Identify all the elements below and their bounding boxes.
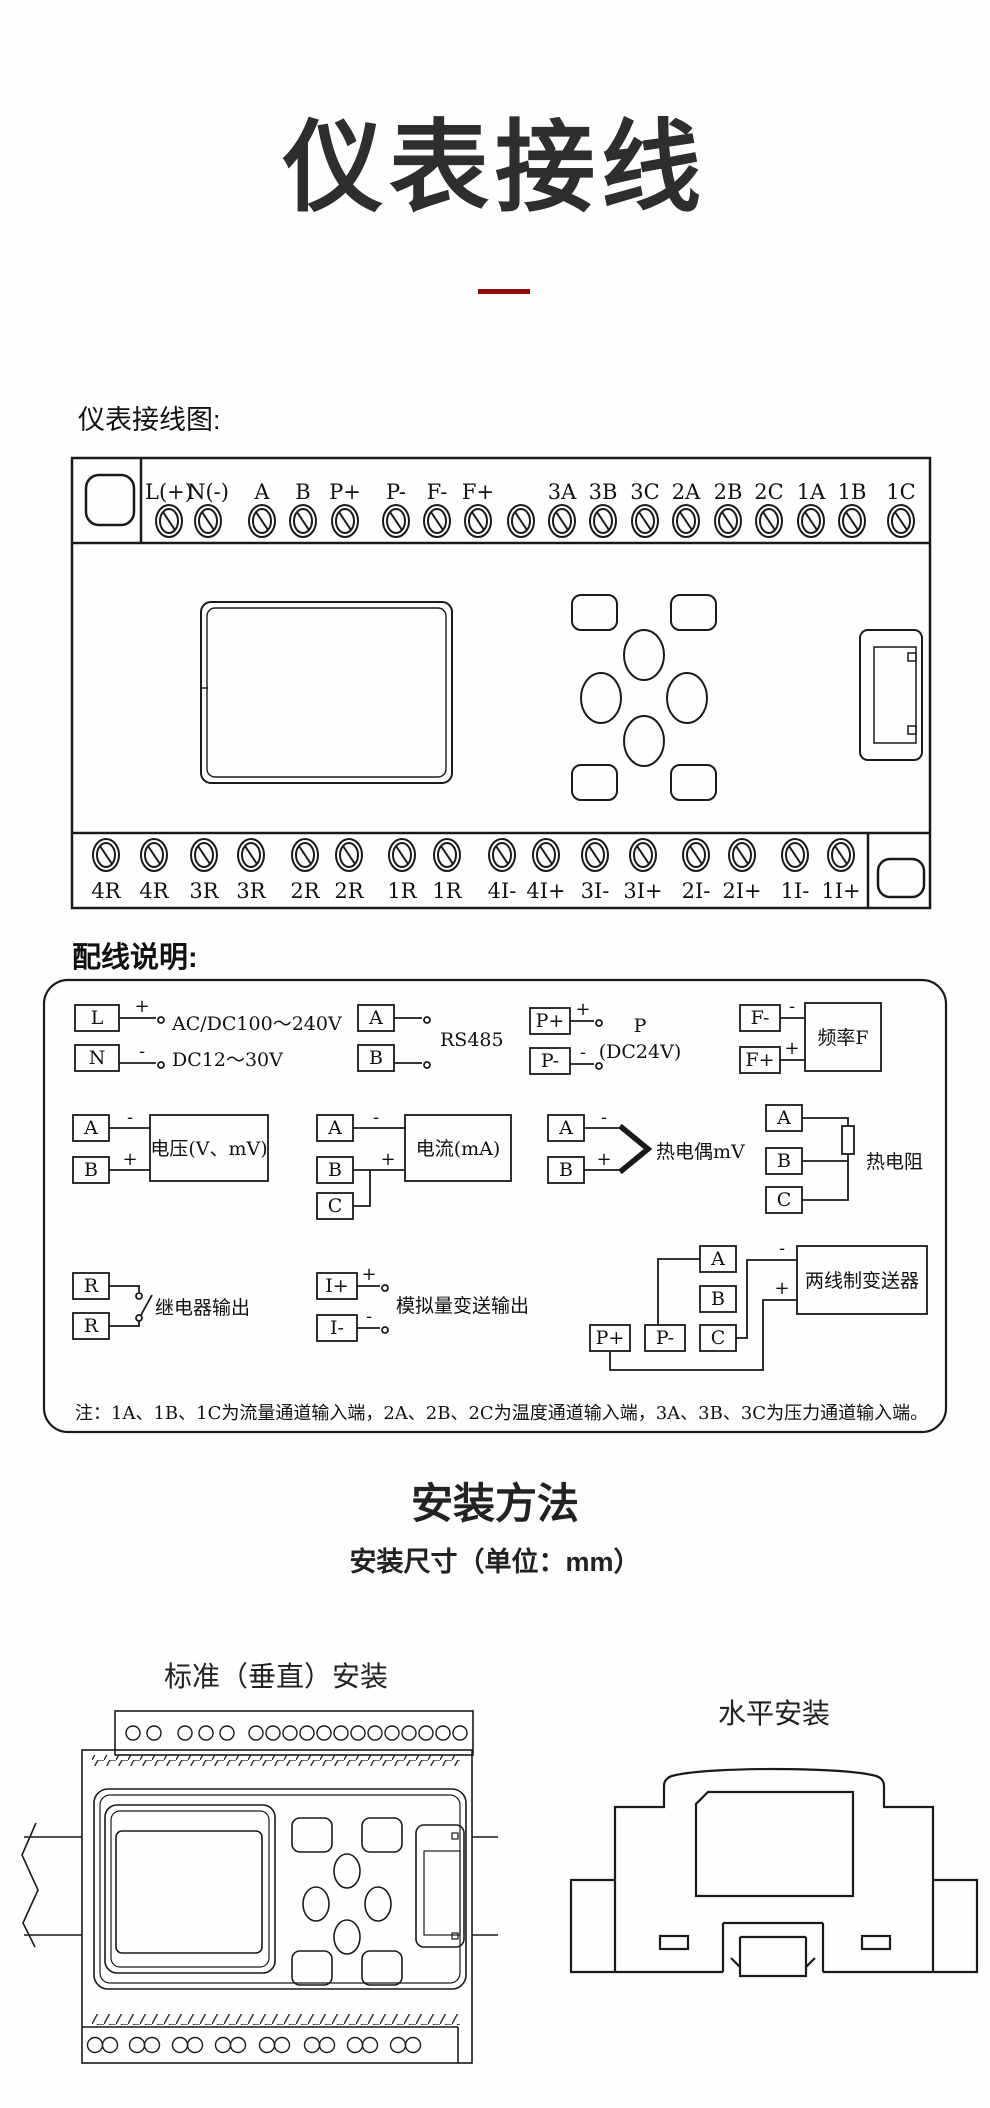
wiring-notes-label: 配线说明:: [72, 934, 198, 976]
thermocouple-label: 热电偶mV: [656, 1141, 745, 1163]
page-title: 仪表接线: [0, 118, 990, 218]
terminal-label: 3I-: [581, 879, 610, 903]
terminal-label: 3I+: [623, 879, 662, 903]
keypad-buttons: [572, 595, 716, 800]
terminal-label: L(+): [145, 480, 193, 504]
minus-sign: -: [366, 1306, 372, 1327]
bottom-terminal-labels: 4R 4R 3R 3R 2R 2R 1R 1R 4I- 4I+ 3I- 3I+ …: [91, 879, 860, 903]
pressure-label: P: [634, 1015, 647, 1037]
minus-sign: -: [127, 1107, 133, 1128]
rtd-label: 热电阻: [866, 1151, 923, 1173]
terminal-label: P+: [329, 480, 361, 504]
terminal-box: A: [83, 1117, 98, 1139]
minus-sign: -: [789, 996, 795, 1017]
terminal-label: 2I+: [722, 879, 761, 903]
terminal-box: F+: [745, 1049, 774, 1071]
wiring-cell-rs485: A B RS485: [358, 1005, 504, 1071]
minus-sign: -: [373, 1107, 379, 1128]
plus-sign: +: [575, 999, 590, 1020]
display-window: [696, 1792, 853, 1896]
terminal-label: 3B: [589, 480, 618, 504]
serrated-edge-bottom: [92, 2014, 460, 2025]
horizontal-install-label: 水平安装: [718, 1692, 830, 1732]
terminal-label: F+: [462, 480, 494, 504]
wiring-cell-rtd: A B C 热电阻: [766, 1105, 923, 1213]
top-terminal-row: [156, 505, 914, 537]
wiring-cell-pressure-supply: P+ P- + - P (DC24V): [530, 999, 681, 1074]
plus-sign: +: [134, 996, 149, 1017]
wiring-cell-analog-output: I+ I- + - 模拟量变送输出: [317, 1264, 529, 1341]
title-divider: [478, 289, 530, 294]
pressure-volt: (DC24V): [599, 1041, 682, 1063]
terminal-label: A: [253, 480, 270, 504]
wiring-cell-current: A B C - + 电流(mA): [317, 1107, 511, 1219]
plus-sign: +: [122, 1149, 137, 1170]
right-shoulder: [933, 1880, 977, 1972]
terminal-label: 1R: [432, 879, 462, 903]
terminal-box: B: [711, 1288, 725, 1310]
terminal-label: 3R: [236, 879, 266, 903]
terminal-box: B: [559, 1159, 573, 1181]
instrument-terminal-diagram: L(+) N(-) A B P+ P- F- F+ 3A 3B 3C 2A 2B…: [60, 455, 935, 915]
plus-sign: +: [784, 1038, 799, 1059]
terminal-box: I+: [325, 1275, 348, 1297]
install-dims-subtitle: 安装尺寸（单位：mm）: [0, 1540, 990, 1579]
horizontal-install-drawing: [550, 1740, 980, 2070]
plus-sign: +: [380, 1149, 395, 1170]
terminal-label: N(-): [187, 480, 229, 504]
voltage-box-label: 电压(V、mV): [150, 1138, 267, 1160]
wiring-cell-relay: R R 继电器输出: [73, 1273, 250, 1339]
vertical-install-label: 标准（垂直）安装: [164, 1655, 388, 1695]
terminal-label: 4I+: [526, 879, 565, 903]
bottom-terminal-row: [93, 839, 854, 871]
terminal-label: 2A: [672, 480, 701, 504]
terminal-box: P-: [656, 1327, 674, 1349]
terminal-label: 2C: [754, 480, 783, 504]
vertical-install-drawing: [20, 1705, 500, 2105]
mounting-hole-top: [86, 475, 134, 525]
terminal-label: 1I-: [781, 879, 810, 903]
rs485-label: RS485: [440, 1029, 504, 1051]
terminal-box: B: [777, 1150, 791, 1172]
terminal-label: P-: [386, 480, 406, 504]
terminal-label: 4R: [91, 879, 121, 903]
side-connector: [860, 630, 922, 760]
transmitter-box-label: 两线制变送器: [805, 1270, 919, 1292]
terminal-label: 4I-: [488, 879, 517, 903]
terminal-box: C: [711, 1327, 726, 1349]
terminal-box: N: [89, 1047, 106, 1069]
minus-sign: -: [580, 1042, 586, 1063]
power-range-2: DC12～30V: [172, 1049, 283, 1071]
terminal-label: 3A: [548, 480, 577, 504]
left-shoulder: [571, 1880, 615, 1972]
terminal-box: P+: [596, 1327, 625, 1349]
top-terminal-labels: L(+) N(-) A B P+ P- F- F+ 3A 3B 3C 2A 2B…: [145, 480, 916, 504]
terminal-label: 1C: [886, 480, 915, 504]
plus-sign: +: [774, 1278, 789, 1299]
plus-sign: +: [361, 1264, 376, 1285]
terminal-label: 1B: [838, 480, 867, 504]
thermocouple-junction: [620, 1126, 648, 1172]
mounting-hole-bottom: [878, 859, 924, 897]
lcd-display: [116, 1831, 262, 1953]
terminal-box: C: [777, 1189, 792, 1211]
rtd-resistor: [842, 1126, 854, 1154]
terminal-label: 3C: [630, 480, 659, 504]
terminal-label: 1R: [387, 879, 417, 903]
lcd-display: [201, 602, 452, 783]
terminal-label: 2B: [714, 480, 743, 504]
terminal-box: A: [776, 1107, 791, 1129]
power-range-1: AC/DC100～240V: [171, 1013, 342, 1035]
terminal-label: F-: [427, 480, 448, 504]
terminal-box: R: [84, 1275, 99, 1297]
rail-break-symbol: [22, 1823, 38, 1947]
terminal-box: A: [368, 1007, 383, 1029]
terminal-box: A: [327, 1117, 342, 1139]
terminal-box: B: [84, 1159, 98, 1181]
side-connector: [416, 1825, 464, 1947]
wiring-notes-panel: L N + - AC/DC100～240V DC12～30V A B RS485…: [42, 978, 948, 1434]
frequency-box-label: 频率F: [817, 1027, 868, 1049]
keypad-buttons: [292, 1818, 402, 1985]
minus-sign: -: [779, 1238, 785, 1259]
wiring-cell-voltage: A B - + 电压(V、mV): [73, 1107, 268, 1183]
relay-switch-lever: [141, 1295, 152, 1315]
terminal-box: F-: [751, 1007, 770, 1029]
bottom-strip-holes: [88, 2038, 421, 2053]
terminal-label: 2I-: [682, 879, 711, 903]
terminal-label: 2R: [290, 879, 320, 903]
wiring-cell-power: L N + - AC/DC100～240V DC12～30V: [75, 996, 342, 1071]
wiring-cell-frequency: F- F+ - + 频率F: [740, 996, 881, 1073]
serrated-edge-top: [92, 1755, 460, 1766]
terminal-label: B: [295, 480, 310, 504]
analog-output-label: 模拟量变送输出: [396, 1295, 529, 1317]
terminal-box: P-: [541, 1050, 559, 1072]
terminal-label: 4R: [139, 879, 169, 903]
terminal-label: 3R: [189, 879, 219, 903]
terminal-label: 1I+: [821, 879, 860, 903]
lcd-bezel: [105, 1805, 275, 1973]
minus-sign: -: [139, 1041, 145, 1062]
terminal-label: 1A: [797, 480, 826, 504]
terminal-box: A: [558, 1117, 573, 1139]
terminal-box: B: [369, 1047, 383, 1069]
terminal-box: R: [84, 1315, 99, 1337]
wiring-cell-transmitter: A B C P+ P- - + 两线制变送器: [590, 1238, 927, 1370]
top-strip-holes: [126, 1726, 467, 1740]
terminal-box: P+: [536, 1010, 565, 1032]
terminal-box: I-: [330, 1317, 344, 1339]
relay-label: 继电器输出: [155, 1297, 250, 1319]
current-box-label: 电流(mA): [416, 1138, 501, 1160]
channel-note: 注：1A、1B、1C为流量通道输入端，2A、2B、2C为温度通道输入端，3A、3…: [75, 1403, 928, 1424]
terminal-label: 2R: [334, 879, 364, 903]
terminal-box: B: [328, 1159, 342, 1181]
din-rail-clip: [723, 1923, 823, 1976]
minus-sign: -: [601, 1107, 607, 1128]
plus-sign: +: [596, 1149, 611, 1170]
terminal-box: C: [328, 1195, 343, 1217]
wiring-diagram-label: 仪表接线图:: [78, 398, 221, 437]
wiring-cell-thermocouple: A B - + 热电偶mV: [548, 1107, 745, 1183]
terminal-box: L: [91, 1007, 104, 1029]
device-profile: [615, 1769, 933, 1972]
terminal-box: A: [710, 1248, 725, 1270]
install-method-title: 安装方法: [0, 1470, 990, 1531]
